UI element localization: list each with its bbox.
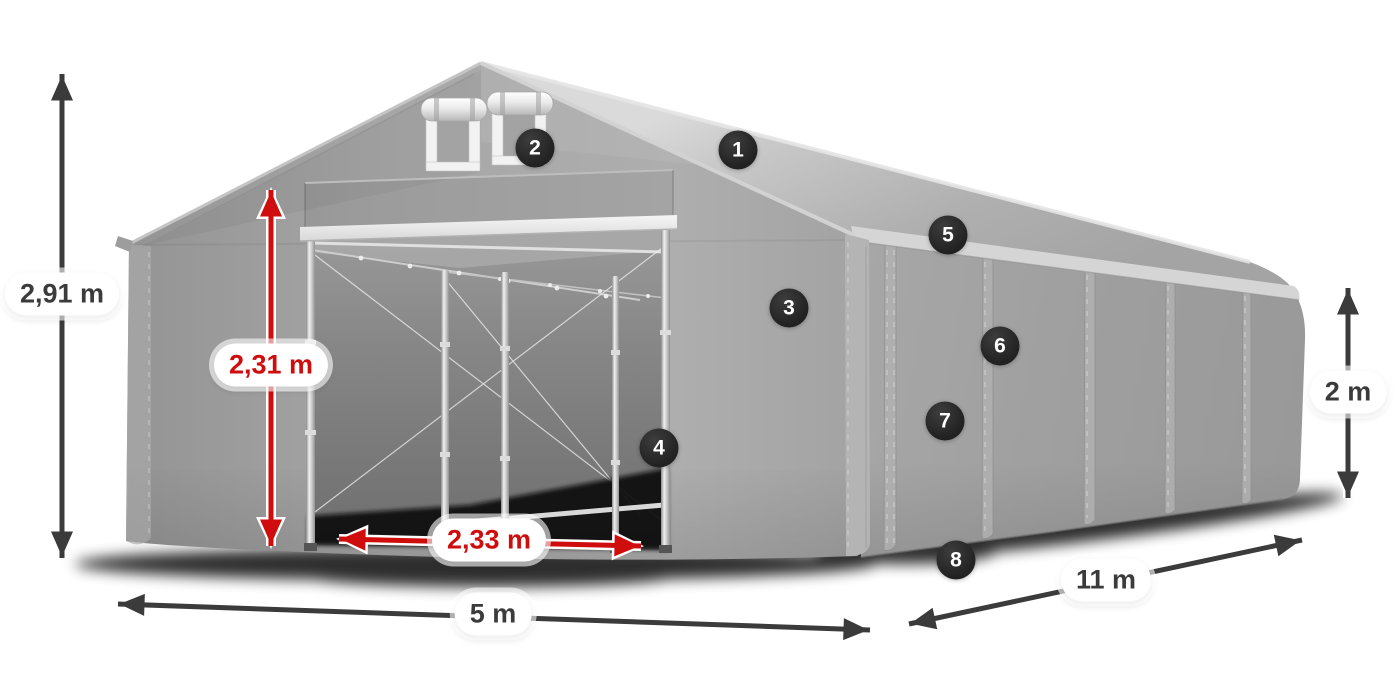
callout-badge-7[interactable]: 7 xyxy=(926,402,965,441)
callout-badge-5[interactable]: 5 xyxy=(929,216,968,255)
dimension-entrance-height-label: 2,31 m xyxy=(214,344,328,387)
tent-illustration xyxy=(0,0,1400,700)
callout-badge-6[interactable]: 6 xyxy=(981,327,1020,366)
dimension-entrance-width-label: 2,33 m xyxy=(432,519,546,562)
dimension-side-height-label: 2 m xyxy=(1310,371,1387,414)
vent-window-left xyxy=(421,98,487,171)
dimension-total-height-label: 2,91 m xyxy=(5,273,119,316)
dimension-side-length-label: 11 m xyxy=(1061,559,1151,602)
callout-badge-2[interactable]: 2 xyxy=(516,129,555,168)
callout-badge-3[interactable]: 3 xyxy=(770,289,809,328)
tent-diagram-stage: 2,91 m 2,31 m 2,33 m 5 m 11 m 2 m 1 2 3 … xyxy=(0,0,1400,700)
tent-entrance xyxy=(300,170,677,555)
callout-badge-8[interactable]: 8 xyxy=(937,541,976,580)
callout-badge-1[interactable]: 1 xyxy=(719,131,758,170)
callout-badge-4[interactable]: 4 xyxy=(640,429,679,468)
dimension-front-width-label: 5 m xyxy=(455,593,532,636)
front-left-corner-strip xyxy=(126,244,151,544)
